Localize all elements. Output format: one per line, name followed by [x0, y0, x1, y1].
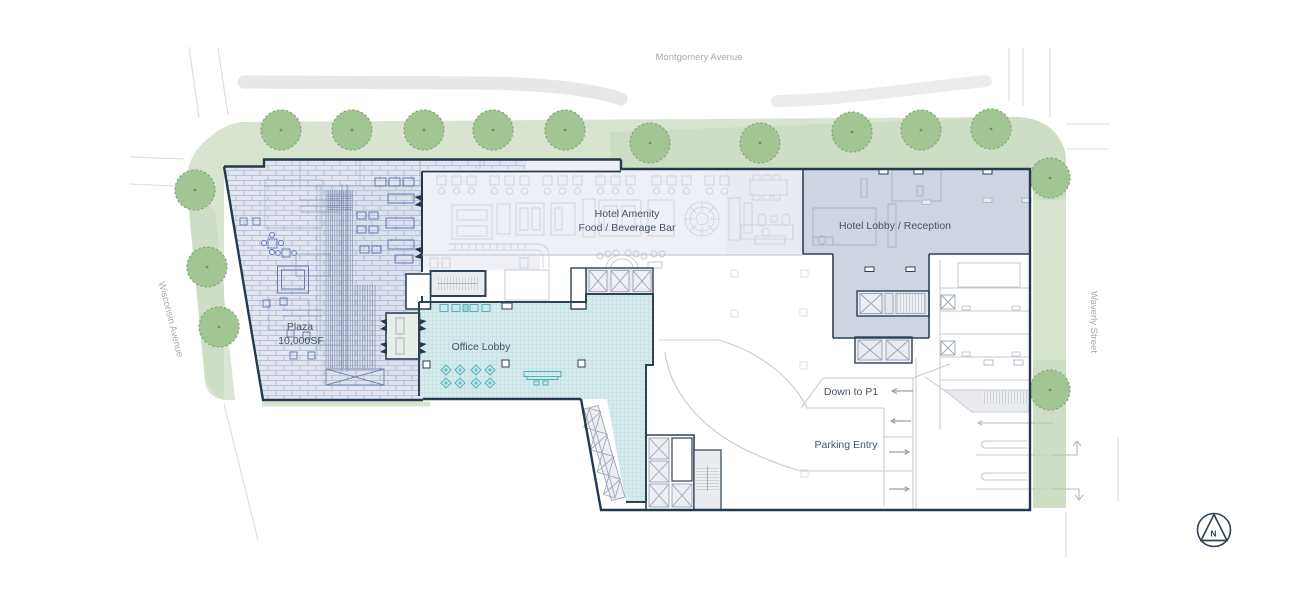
svg-text:N: N	[1210, 529, 1216, 539]
svg-text:Parking Entry: Parking Entry	[814, 439, 878, 451]
svg-text:Hotel Amenity: Hotel Amenity	[595, 208, 661, 220]
svg-text:Plaza: Plaza	[287, 321, 313, 333]
svg-text:10,000SF: 10,000SF	[278, 335, 324, 347]
svg-text:Down to P1: Down to P1	[824, 386, 878, 398]
svg-text:Montgomery Avenue: Montgomery Avenue	[656, 52, 743, 63]
svg-text:Office Lobby: Office Lobby	[452, 341, 512, 353]
svg-text:Food / Beverage Bar: Food / Beverage Bar	[579, 222, 676, 234]
svg-text:Waverly Street: Waverly Street	[1088, 291, 1099, 353]
svg-text:Hotel Lobby / Reception: Hotel Lobby / Reception	[839, 220, 951, 232]
